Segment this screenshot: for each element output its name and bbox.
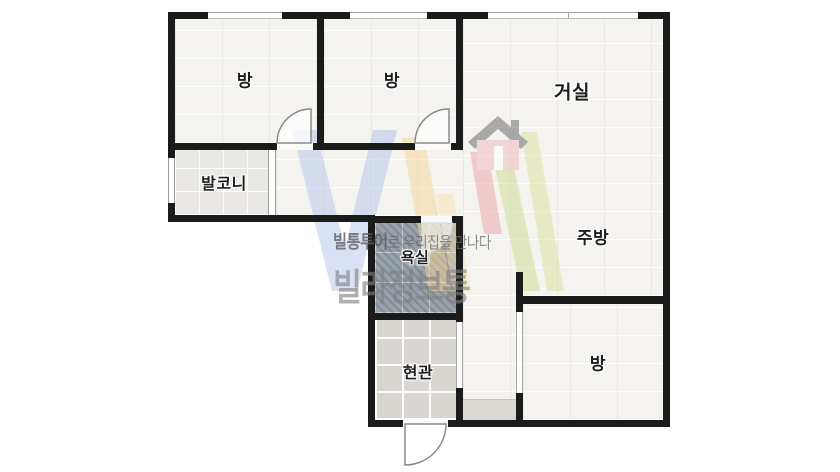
- label-living-room: 거실: [554, 78, 590, 105]
- door-main-entrance: [405, 424, 446, 465]
- label-entrance: 현관: [403, 359, 433, 383]
- door-swings: [0, 0, 840, 472]
- floor-plan: 빌통투어로 우리집을 만나다 빌라정보통 방 방 거실 발코니 욕실 주방 현관…: [0, 0, 840, 472]
- label-kitchen: 주방: [577, 224, 609, 249]
- door-room-top-left: [277, 109, 311, 143]
- label-room-top-left: 방: [237, 67, 253, 92]
- label-balcony: 발코니: [201, 170, 247, 194]
- door-room-top-mid: [415, 109, 449, 143]
- label-bathroom: 욕실: [401, 247, 430, 268]
- label-room-bottom-right: 방: [590, 350, 606, 375]
- label-room-top-mid: 방: [384, 67, 400, 92]
